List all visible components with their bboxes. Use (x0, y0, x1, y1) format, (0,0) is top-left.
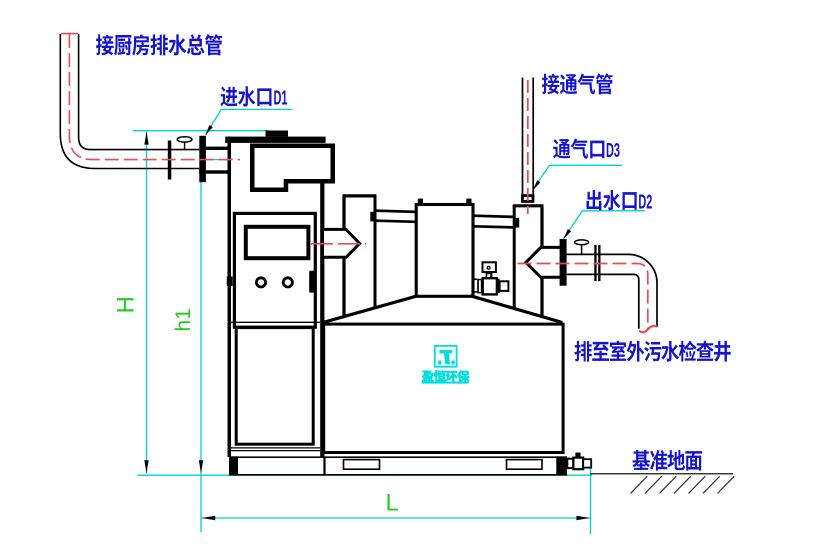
svg-text:L: L (386, 490, 399, 517)
svg-text:H: H (113, 296, 140, 313)
svg-text:h1: h1 (172, 308, 195, 331)
svg-text:D2: D2 (638, 190, 652, 213)
svg-text:D3: D3 (606, 139, 620, 162)
svg-text:D1: D1 (274, 87, 288, 110)
